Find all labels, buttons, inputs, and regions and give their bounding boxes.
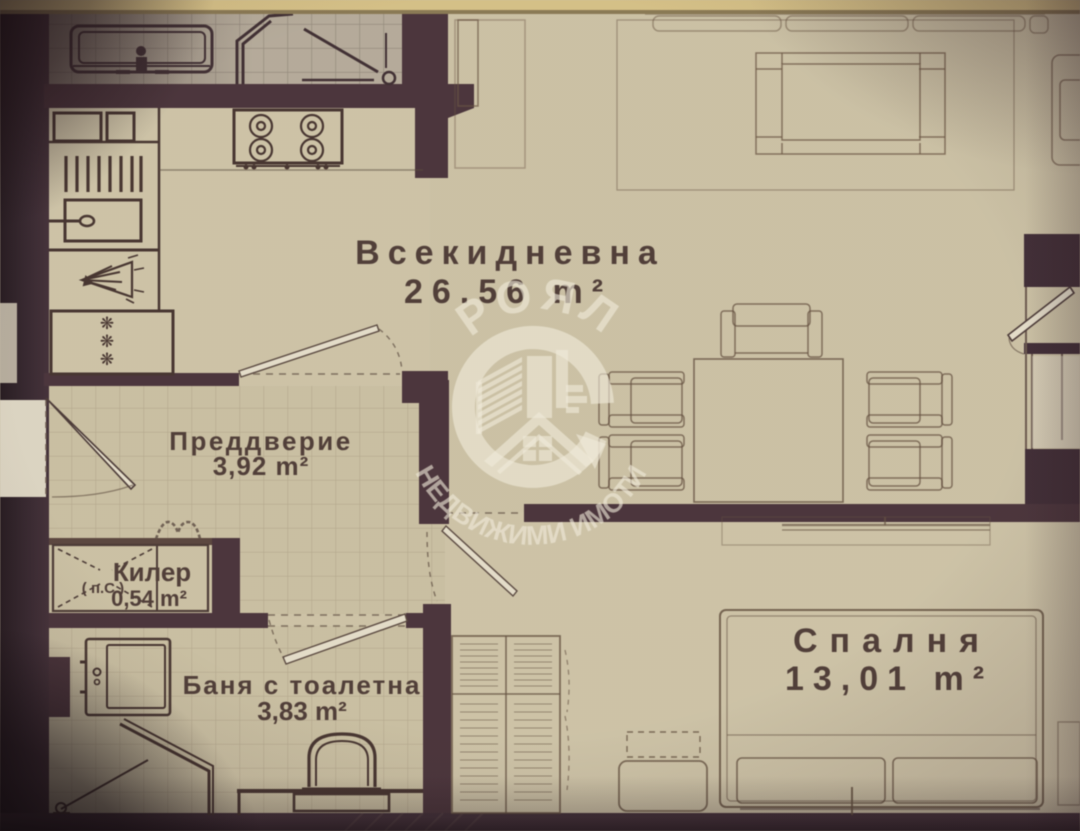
svg-text:3,92 m²: 3,92 m² — [213, 451, 310, 481]
svg-text:3,83 m²: 3,83 m² — [257, 696, 347, 726]
svg-text:Спалня: Спалня — [793, 622, 991, 660]
svg-text:❋: ❋ — [100, 332, 114, 351]
svg-text:0,54 m²: 0,54 m² — [111, 586, 187, 611]
svg-text:Всекидневна: Всекидневна — [355, 234, 665, 272]
svg-text:❋: ❋ — [100, 314, 114, 333]
svg-text:Килер: Килер — [113, 557, 191, 587]
svg-text:❋: ❋ — [100, 350, 114, 369]
svg-text:13,01 m²: 13,01 m² — [785, 660, 993, 698]
